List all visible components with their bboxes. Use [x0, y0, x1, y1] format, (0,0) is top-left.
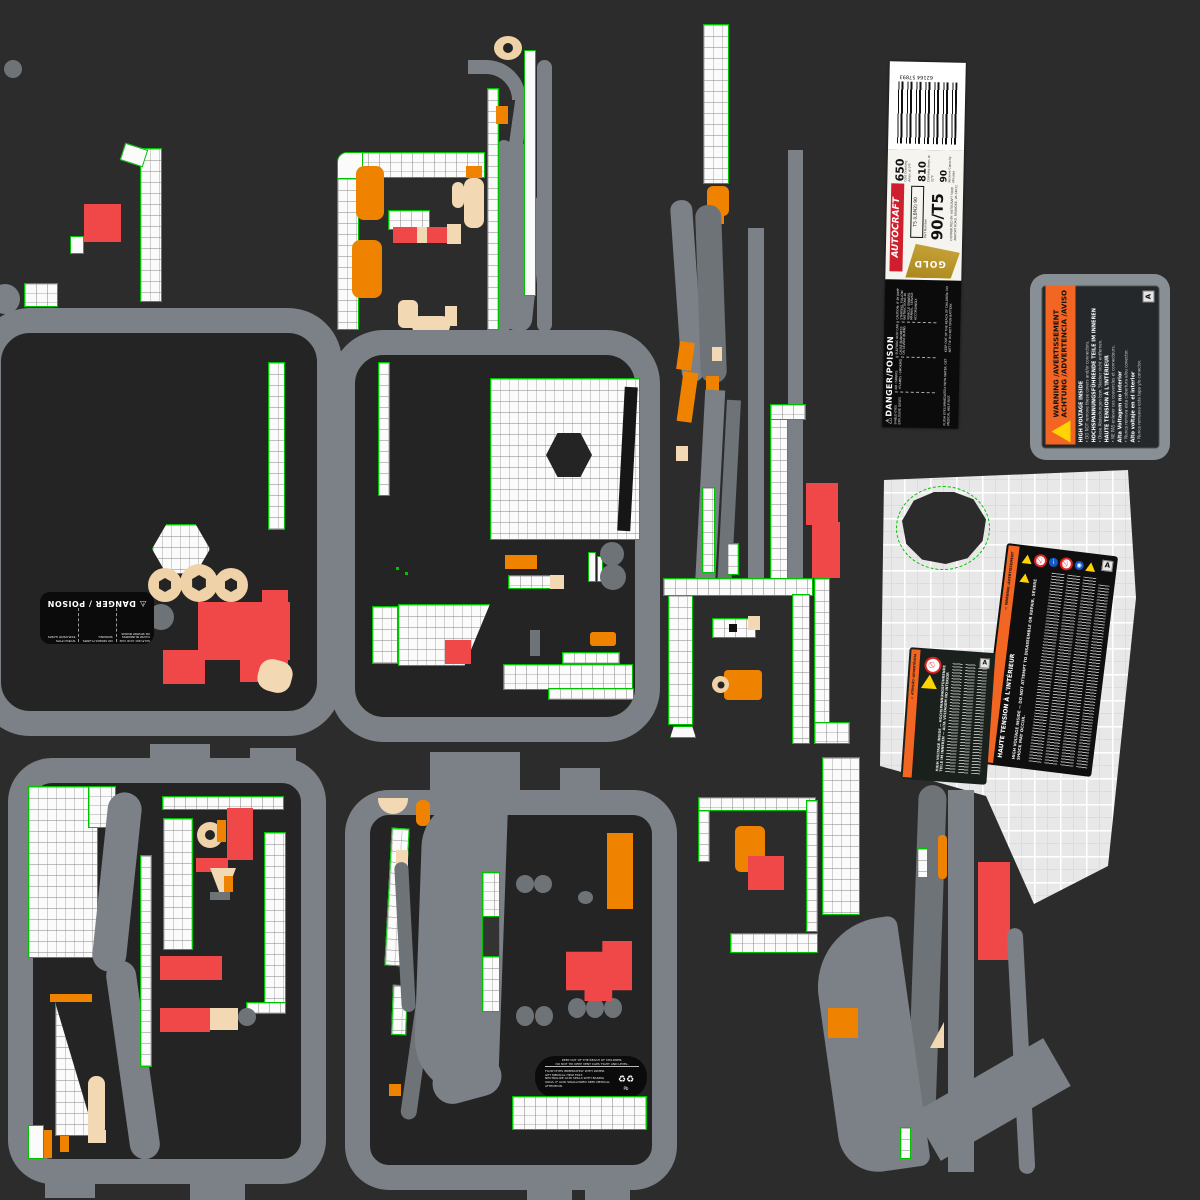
uv-frame-bar: [806, 800, 818, 932]
uv-dot: [4, 60, 22, 78]
nut-ring: [214, 568, 248, 602]
shadow-wedge: [617, 387, 638, 531]
part-number: 90/T5: [928, 193, 947, 240]
hv-header-line1: WARNING /AVERTISSEMENT: [1052, 290, 1060, 418]
uv-strip: [140, 148, 162, 302]
uv-patch-large: [490, 378, 640, 540]
red-patch: [84, 204, 121, 242]
recycle-pb-mark: Pb: [613, 1086, 639, 1091]
uv-ladder: [482, 872, 500, 918]
nut-ring: [180, 564, 218, 602]
uv-strip: [140, 855, 152, 1067]
tier-name: GOLD: [914, 258, 946, 269]
gray-bar: [530, 630, 540, 656]
group-code: T5 (LBN2) 90: [910, 186, 924, 238]
danger-text-col: NO SPARKS FLAMES SMOKING: [78, 608, 112, 642]
hv-section: Alto voltaje en el interior• Nunca remue…: [1131, 291, 1142, 443]
orange-patch: [828, 1008, 858, 1038]
uv-chip: [28, 1125, 44, 1159]
orange-patch: [677, 371, 699, 423]
uv-tube: [792, 594, 810, 744]
battery-info-section: AUTOCRAFT GOLD Part Number 90/T5 T5 (LBN…: [885, 149, 964, 281]
high-voltage-triangle-icon: [1051, 421, 1070, 443]
battery-danger-col: SULFURIC ACID CAN CAUSE BLINDNESS OR SEV…: [896, 322, 937, 356]
uv-ladder: [512, 1096, 647, 1130]
tan-bit: [445, 306, 457, 326]
hv-section: Alta Voltagem no interior• Nunca remova …: [1118, 291, 1129, 443]
battery-danger-col: CAUTION: IF BY JUMP STARTING, FOLLOW INS…: [896, 282, 937, 320]
orange-bar: [505, 555, 537, 569]
uv-strip: [378, 362, 390, 496]
orange-rect: [607, 833, 633, 909]
tan-washer: [494, 36, 522, 60]
recycle-icon: ♻: [626, 1075, 634, 1085]
uv-strip: [727, 543, 739, 575]
red-patch: [160, 1008, 210, 1032]
gray-bar: [748, 228, 764, 592]
protect-eyes-icon: ◉: [1074, 560, 1084, 570]
danger-poison-label: SULFURIC ACID CAN CAUSE BLINDNESS OR SEV…: [40, 592, 154, 644]
uv-tube-elbow: [770, 404, 806, 420]
danger-text-col: SULFURIC ACID CAN CAUSE BLINDNESS OR SEV…: [116, 608, 150, 642]
uv-dark-segment: [482, 916, 500, 958]
orange-bar: [590, 632, 616, 646]
battery-danger-footer: KEEP OUT OF THE REACH OF CHILDREN. DO NO…: [945, 284, 954, 352]
tan-bone: [88, 1076, 105, 1136]
side-band-text: ⚠ WARNING /AVERTISSEMENT: [1004, 552, 1015, 611]
hv-section: HOCHSPANNUNGSFÜHRENDE TEILE IM INNEREN• …: [1092, 291, 1103, 443]
red-patch: [227, 808, 253, 860]
high-voltage-triangle-icon: [921, 674, 938, 689]
barcode: [896, 81, 957, 144]
hexagon-hole: [546, 433, 592, 477]
hv-header-line2: ACHTUNG /ADVERTENCIA /AVISO: [1061, 290, 1069, 418]
uv-dot: [600, 564, 626, 590]
gray-barlet: [210, 892, 230, 900]
orange-chip: [60, 1136, 69, 1152]
tan-cap: [550, 575, 564, 589]
danger-text-col: SHIELD EYES EXPLOSIVE GASES: [44, 608, 75, 642]
uv-grid-column: [372, 606, 398, 664]
uv-chip: [70, 236, 84, 254]
label-corner-mark: A: [979, 658, 990, 669]
uv-chip: [24, 283, 58, 307]
uv-texture-atlas: SULFURIC ACID CAN CAUSE BLINDNESS OR SEV…: [0, 0, 1200, 1200]
keepout-label: KEEP OUT OF THE REACH OF CHILDREN. DO NO…: [535, 1056, 647, 1098]
warning-triangle-icon: [1022, 554, 1033, 564]
red-stair: [812, 522, 840, 578]
label-corner-mark: A: [1101, 560, 1113, 572]
gray-band: [695, 205, 727, 384]
corrosive-icon: [1085, 562, 1096, 572]
uv-frame-bar: [698, 810, 710, 862]
uv-frame-bar: [162, 796, 284, 810]
orange-bar: [44, 1130, 52, 1158]
tan-chip: [712, 347, 722, 361]
brand-logo: AUTOCRAFT: [889, 183, 904, 271]
tan-bone: [464, 178, 484, 228]
uv-strip: [524, 50, 536, 296]
uv-dot: [534, 875, 552, 893]
battery-product-label: ⚠DANGER/POISON SHIELD EYES EXPLOSIVE GAS…: [882, 61, 966, 429]
tan-cap: [417, 227, 427, 243]
battery-danger-col: NO •SPARKS •FLAMES •SMOKING: [895, 357, 936, 391]
red-connector: [393, 227, 417, 243]
uv-ladder: [482, 956, 500, 1012]
ca-label: Cranking Amps at 32°F: [927, 152, 935, 182]
orange-plug: [356, 166, 384, 220]
uv-frame-bar: [730, 933, 818, 953]
gold-band: GOLD: [905, 244, 960, 279]
red-patch: [262, 590, 288, 606]
uv-grid-column: [163, 818, 193, 950]
orange-chip: [217, 820, 226, 842]
orange-chip: [496, 106, 508, 124]
frame-foot: [190, 1178, 245, 1200]
uv-dot: [600, 542, 624, 566]
uv-tube-foot: [814, 722, 850, 744]
orange-sliver: [938, 835, 947, 879]
tan-cap: [447, 224, 461, 244]
uv-chip: [588, 552, 596, 582]
tan-chip: [676, 446, 688, 461]
tan-chip: [88, 1130, 106, 1143]
uv-dot: [516, 1006, 534, 1026]
uv-ladder: [822, 757, 860, 915]
uv-ladder: [548, 688, 634, 700]
hv-section: HAUTE TENSION À L'INTÉRIEUR• NE PAS enle…: [1105, 291, 1116, 443]
uv-frame-bar: [698, 797, 816, 811]
frame-tab: [430, 752, 520, 792]
uv-chip: [917, 848, 928, 878]
uv-strip: [562, 652, 620, 664]
bolt-hole: [729, 624, 737, 632]
orange-chip: [389, 1084, 401, 1096]
frame-foot: [585, 1184, 630, 1200]
tan-cap-piece: [210, 1008, 238, 1030]
uv-ladder: [503, 664, 633, 690]
gray-bar: [788, 150, 803, 595]
orange-chip: [224, 876, 233, 892]
hv-label-header: WARNING /AVERTISSEMENT ACHTUNG /ADVERTEN…: [1046, 286, 1076, 445]
tan-nub: [748, 616, 760, 630]
battery-danger-note: FLUSH EYES IMMEDIATELY WITH WATER. GET M…: [944, 357, 953, 425]
gray-band: [537, 60, 552, 332]
read-instructions-icon: i: [1048, 557, 1058, 567]
orange-plug: [352, 240, 382, 298]
frame-foot: [527, 1180, 572, 1200]
no-open-flame-icon: ⃠: [924, 656, 942, 674]
hv-section-body: • Diese Abdeckungen bzw. Stecker nicht e…: [1098, 291, 1103, 443]
hv-section-body: • NE PAS enlever ces couvercles et conne…: [1111, 291, 1116, 443]
uv-tube: [668, 595, 693, 725]
red-patch: [978, 862, 1010, 960]
uv-dot: [568, 998, 586, 1018]
battery-danger-section: ⚠DANGER/POISON SHIELD EYES EXPLOSIVE GAS…: [882, 279, 961, 429]
uv-tube: [814, 578, 830, 744]
frame-foot: [45, 1176, 95, 1198]
orange-strip: [50, 994, 92, 1002]
green-speck: [405, 572, 408, 575]
uv-dot: [586, 998, 604, 1018]
red-patch: [445, 640, 471, 664]
rc-label: Reserve Capacity Minutes: [948, 153, 956, 183]
hv-section-body: • Nunca remova esta cobertura e/ou conec…: [1124, 291, 1129, 443]
uv-ladder: [703, 24, 729, 184]
hv-section-body: • DO NOT remove these covers and/or conn…: [1085, 291, 1090, 443]
hv-corner-mark: A: [1143, 291, 1155, 303]
uv-dot: [516, 875, 534, 893]
hv-section: HIGH VOLTAGE INSIDE• DO NOT remove these…: [1079, 291, 1090, 443]
uv-dot: [238, 1008, 256, 1026]
side-band-text: ⚠ ATENÇÃO /ADVERTÊNCIA: [910, 653, 917, 700]
no-smoking-icon: ⃠: [1059, 557, 1073, 571]
uv-tube: [770, 404, 788, 580]
hv-section-body: • Nunca remueva esta tapa y/o conector.: [1137, 291, 1142, 443]
red-patch: [160, 956, 222, 980]
uv-strip: [487, 88, 499, 330]
tan-pill: [452, 182, 464, 208]
red-patch: [163, 650, 205, 684]
no-open-flame-icon: ⃠: [1033, 553, 1047, 567]
tan-ring: [712, 676, 729, 693]
uv-ladder: [264, 832, 286, 1010]
cca-label: Cold Cranking Amps at 0°F: [904, 152, 912, 182]
uv-trapezoid-foot: [670, 726, 696, 738]
uv-dot: [578, 891, 593, 904]
red-connector: [427, 227, 447, 243]
uv-chip: [900, 1127, 911, 1159]
uv-tube: [663, 578, 813, 596]
uv-dot: [535, 1006, 553, 1026]
barcode-digits: 62164 57893: [899, 73, 933, 80]
recycle-icon: ♻: [618, 1075, 626, 1085]
uv-strip: [268, 362, 285, 530]
keepout-line: NEUTRALIZE ACID SPILLS WITH BAKING SODA.…: [545, 1077, 610, 1088]
red-stair: [806, 483, 838, 525]
uv-strip: [702, 487, 715, 573]
battery-barcode-section: 62164 57893: [888, 61, 966, 151]
orange-connector: [724, 670, 762, 700]
orange-cap: [466, 166, 482, 178]
battery-danger-col: SHIELD EYES EXPLOSIVE GASES: [894, 391, 935, 425]
green-speck: [396, 567, 399, 570]
uv-dot: [604, 998, 622, 1018]
distributor-text: DISTRIBUTED BY: AUTOCRAFT 5008 AIRPORT R…: [950, 185, 958, 241]
red-patch: [748, 856, 784, 890]
island-hv-label-small: ⚠ ATENÇÃO /ADVERTÊNCIA ⃠ A HIGH VOLTAGE …: [901, 647, 996, 785]
danger-title: ⚠ DANGER / POISON: [44, 599, 150, 608]
hv-warning-label: WARNING /AVERTISSEMENT ACHTUNG /ADVERTEN…: [1042, 286, 1160, 449]
